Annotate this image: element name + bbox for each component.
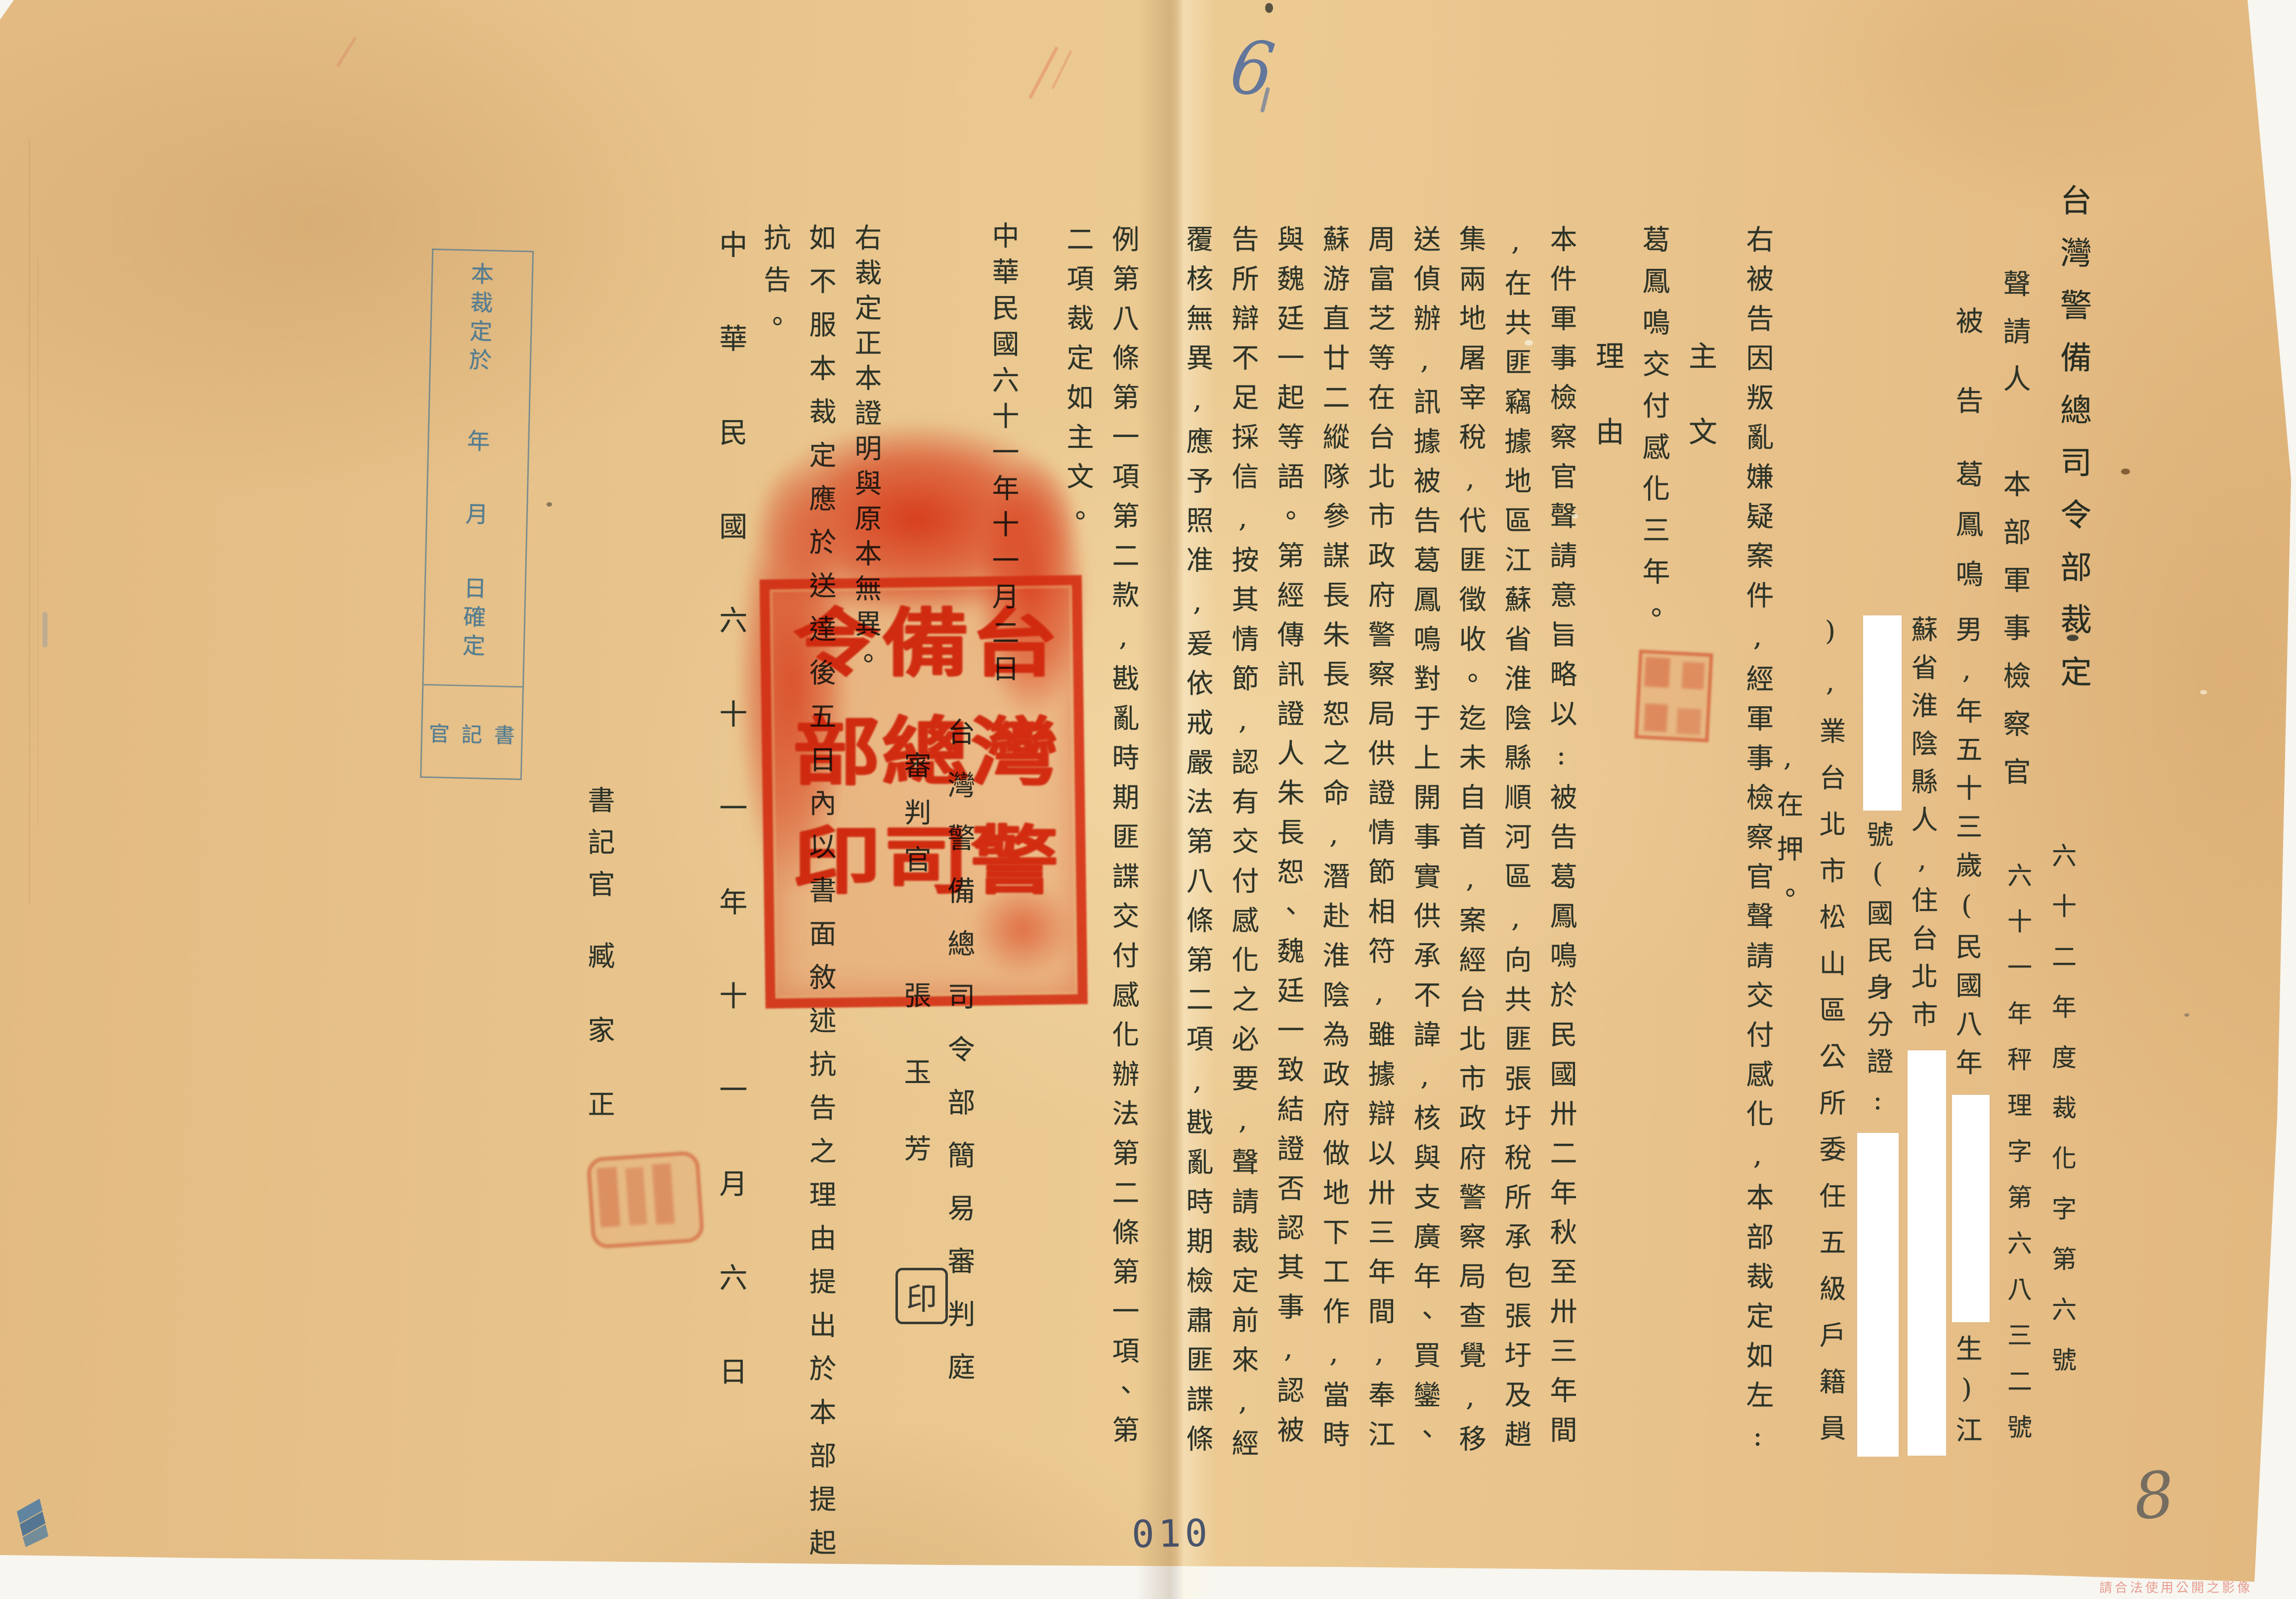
confirm-clerk-char-1: 官 [428,717,450,747]
confirm-clerk-char-2: 記 [461,718,482,748]
confirm-box-clerk-row: 官 記 書 [422,695,522,771]
archive-corner-emblem-icon [13,1489,67,1548]
confirm-box-year: 年 [466,429,489,452]
redaction-box-id-number [1857,1133,1899,1457]
applicant-value: 本部軍事檢察官 [2000,470,2028,805]
seal-script-col-3: 令部印 [786,604,873,930]
handwritten-page-number: 8 [2131,1458,2177,1535]
reason-col-2: ,在共匪竊據地區江蘇省淮陰縣順河區,向共匪張圩稅所承包張圩及趙 [1502,225,1529,1460]
official-court-red-seal: 台灣警 備總司 令部印 [739,420,1087,989]
defendant-info-colE: ,在押。 [1774,741,1801,924]
appeal-notice-col-2: 抗告。 [761,223,788,349]
redaction-box-address-2 [1863,615,1902,811]
confirmation-stamp-box: 本裁定於 年 月 日確定 官 記 書 [420,249,534,780]
scanned-document-page: 台灣警備總司令部裁定 六十二年度裁化字第六號 六十一年秤理字第六八三二號 聲請人… [0,0,2296,1599]
paper-stain-3 [1265,3,1273,13]
case-number-1: 六十二年度裁化字第六號 [2050,843,2075,1397]
reason-col-1: 本件軍事檢察官聲請意旨略以:被告葛鳳鳴於民國卅二年秋至卅三年間 [1547,225,1574,1455]
paper-stain-5 [2184,1013,2189,1017]
main-text-column: 葛鳳鳴交付感化三年。 [1640,225,1667,640]
applicant-label: 聲請人 [2000,269,2028,412]
confirm-box-month: 月 [464,502,487,525]
clerk-name: 臧家正 [585,942,612,1164]
redaction-box-address-1 [1908,1050,1946,1456]
seal-script-col-1: 台灣警 [964,604,1051,930]
reason-col-6: 蘇游直廿二縱隊參謀長朱長恕之命,潛赴淮陰為政府做地下工作,當時 [1320,225,1347,1460]
reason-col-5: 周富芝等在台北市政府警察局供證情節相符,雖據辯以卅三年間,奉江 [1365,225,1393,1460]
paper-stain-1 [2121,469,2130,475]
reason-label: 理由 [1593,341,1622,492]
preamble-column: 右被告因叛亂嫌疑案件,經軍事檢察官聲請交付感化,本部裁定如左: [1743,225,1771,1464]
confirm-clerk-char-3: 書 [494,718,515,749]
case-number-2: 六十一年秤理字第六八三二號 [2005,863,2030,1460]
reason-col-9: 覆核無異,應予照准,爰依戒嚴法第八條第二項,戡亂時期檢肅匪諜條 [1184,225,1211,1464]
seal-script-col-2: 備總司 [875,604,962,930]
paper-damage-spot-2 [1572,514,1578,519]
reason-col-7: 與魏廷一起等語。第經傳訊證人朱長恕、魏廷一致結證否認其事,認被 [1275,225,1302,1455]
archive-watermark-text: 請合法使用公開之影像 [2099,1578,2253,1596]
clerk-title: 書記官 [585,786,612,912]
document-title: 台灣警備總司令部裁定 [2057,184,2089,708]
judge-ink-seal-box: 印 [895,1268,948,1324]
redaction-box-birthdate [1952,1095,1990,1322]
defendant-label: 被告 [1953,306,1981,466]
reason-col-4: 送偵辦,訊據被告葛鳳鳴對于上開事實供承不諱,核與支廣年、買鑾、 [1411,225,1438,1460]
confirm-box-divider [424,684,522,688]
main-text-label: 主文 [1686,341,1715,492]
reason-col-3: 集兩地屠宰稅,代匪徵收。迄未自首,案經台北市政府警察局查覺,移 [1456,225,1484,1464]
paper-stain-2 [2067,635,2079,641]
paper-stain-4 [547,502,552,507]
confirm-box-line1: 本裁定於 [467,262,492,377]
small-red-seal-clerk [586,1150,705,1249]
left-edge-crease-2 [38,257,39,825]
defendant-name: 葛鳳鳴 [1953,460,1981,609]
defendant-info-colA-post: 生)江 [1953,1335,1980,1455]
paper-damage-spot-1 [1525,340,1533,346]
reason-col-10: 例第八條第一項第二款,戡亂時期匪諜交付感化辦法第二條第一項、第 [1109,225,1137,1455]
defendant-info-colD: ),業台北市松山區公所委任五級戶籍員 [1817,615,1843,1461]
judge-seal-char: 印 [906,1274,937,1318]
left-edge-crease [29,138,30,905]
small-red-seal-main-text [1634,649,1713,742]
reason-col-8: 告所辯不足採信,按其情節,認有交付感化之必要,聲請裁定前來,經 [1229,225,1256,1469]
archive-page-number: 010 [1131,1511,1212,1556]
defendant-info-colC: 號(國民身分證: [1864,821,1891,1126]
defendant-info-colA-pre: 男,年五十三歲(民國八年 [1953,615,1980,1087]
paper-damage-spot-3 [2200,690,2207,694]
confirm-box-day-line: 日確定 [461,576,485,662]
blue-smudge-left-edge [43,612,47,648]
judge-name: 張玉芳 [901,981,929,1211]
defendant-info-colB: 蘇省淮陰縣人,住台北市 [1909,615,1935,1038]
